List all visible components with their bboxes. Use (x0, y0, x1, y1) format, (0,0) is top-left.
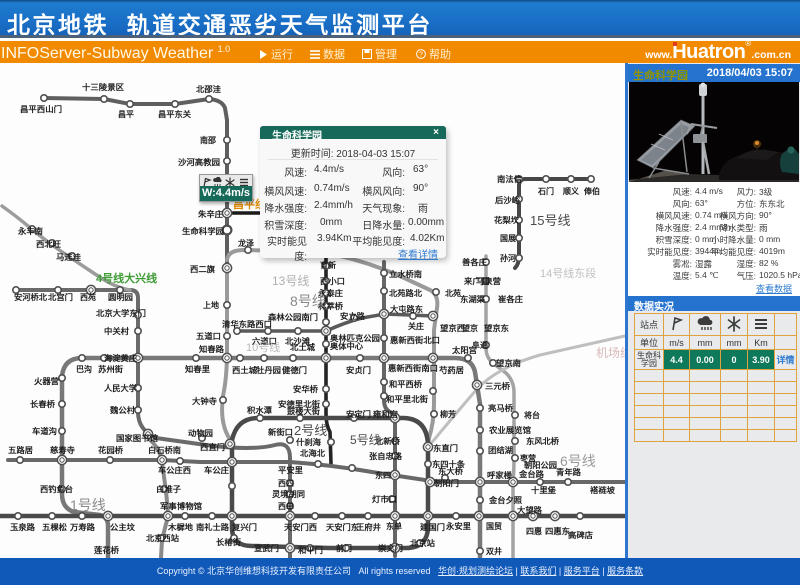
svg-text:东湖渠: 东湖渠 (460, 294, 486, 304)
svg-text:生命科学园: 生命科学园 (182, 226, 224, 236)
svg-text:大屯路东: 大屯路东 (390, 304, 423, 314)
svg-text:天安门西: 天安门西 (284, 522, 317, 532)
svg-text:北海北: 北海北 (300, 448, 326, 458)
svg-text:军事博物馆: 军事博物馆 (160, 501, 202, 511)
svg-text:惠新西街北口: 惠新西街北口 (390, 335, 440, 345)
svg-text:昌平: 昌平 (118, 109, 134, 119)
svg-text:崔各庄: 崔各庄 (497, 294, 523, 304)
svg-text:望京: 望京 (462, 323, 478, 333)
svg-text:安华桥: 安华桥 (293, 384, 319, 394)
svg-text:灵境胡同: 灵境胡同 (272, 489, 305, 499)
svg-text:火器营: 火器营 (34, 376, 59, 386)
svg-text:北邵洼: 北邵洼 (196, 84, 222, 94)
svg-text:北京西站: 北京西站 (146, 533, 180, 543)
svg-text:10号线: 10号线 (246, 340, 280, 354)
svg-text:平安里: 平安里 (278, 465, 303, 475)
svg-text:机场线: 机场线 (596, 346, 625, 360)
svg-text:孙河: 孙河 (500, 253, 517, 263)
svg-text:西苑: 西苑 (80, 292, 97, 302)
svg-text:高碑店: 高碑店 (568, 530, 593, 540)
svg-text:健德门: 健德门 (282, 365, 307, 375)
svg-text:8号线: 8号线 (290, 293, 326, 309)
svg-text:北苑: 北苑 (445, 288, 462, 298)
svg-text:西二旗: 西二旗 (190, 264, 215, 274)
svg-text:后沙峪: 后沙峪 (495, 195, 521, 205)
svg-text:13号线: 13号线 (272, 274, 309, 288)
svg-text:白堆子: 白堆子 (156, 484, 181, 494)
svg-text:知春里: 知春里 (184, 364, 210, 374)
svg-text:俸伯: 俸伯 (583, 186, 600, 196)
svg-text:马连洼: 马连洼 (56, 252, 82, 262)
svg-text:阜通: 阜通 (472, 340, 489, 350)
svg-text:安立路: 安立路 (340, 311, 366, 321)
svg-text:北宫门: 北宫门 (48, 292, 73, 302)
svg-text:花园桥: 花园桥 (98, 445, 124, 455)
svg-text:南法信: 南法信 (497, 174, 522, 184)
svg-text:十里堡: 十里堡 (531, 485, 557, 495)
svg-text:东四: 东四 (375, 470, 391, 480)
svg-text:什刹海: 什刹海 (296, 437, 322, 447)
svg-text:永丰南: 永丰南 (17, 226, 43, 236)
svg-text:金台夕照: 金台夕照 (488, 495, 523, 505)
svg-text:永安里: 永安里 (445, 521, 471, 531)
svg-text:大望路: 大望路 (517, 505, 543, 515)
svg-text:安定门: 安定门 (346, 409, 371, 419)
svg-text:双井: 双井 (486, 546, 502, 556)
svg-text:15号线: 15号线 (530, 213, 570, 228)
svg-text:石门: 石门 (537, 186, 554, 196)
svg-text:安贞门: 安贞门 (346, 365, 371, 375)
svg-text:东单: 东单 (386, 521, 402, 531)
svg-text:将台: 将台 (524, 410, 540, 420)
svg-text:人民大学: 人民大学 (104, 383, 137, 393)
svg-text:雍和宫: 雍和宫 (373, 409, 398, 419)
svg-text:长椿街: 长椿街 (216, 537, 242, 547)
svg-text:农业展览馆: 农业展览馆 (488, 425, 531, 435)
svg-text:复兴门: 复兴门 (231, 522, 257, 532)
svg-text:上地: 上地 (203, 300, 220, 310)
svg-text:南邵: 南邵 (200, 135, 217, 145)
svg-text:北京站: 北京站 (410, 538, 436, 548)
svg-text:西小口: 西小口 (320, 276, 345, 286)
svg-text:魏公村: 魏公村 (109, 405, 136, 415)
svg-text:十三陵景区: 十三陵景区 (82, 82, 124, 92)
svg-text:龙泽: 龙泽 (237, 238, 255, 248)
svg-text:万寿路: 万寿路 (69, 522, 96, 532)
svg-text:关庄: 关庄 (408, 321, 424, 331)
svg-text:圆明园: 圆明园 (108, 293, 133, 302)
svg-text:沙河高教园: 沙河高教园 (178, 157, 220, 167)
svg-text:鼓楼大街: 鼓楼大街 (287, 406, 321, 416)
svg-text:四惠: 四惠 (526, 526, 542, 536)
svg-text:公主坟: 公主坟 (110, 522, 136, 532)
svg-text:车公庄西: 车公庄西 (158, 465, 191, 475)
svg-text:1号线: 1号线 (70, 497, 106, 513)
svg-text:亮马桥: 亮马桥 (488, 403, 514, 413)
svg-text:4号线大兴线: 4号线大兴线 (96, 271, 157, 285)
svg-text:西北旺: 西北旺 (36, 239, 62, 249)
svg-text:2号线: 2号线 (294, 423, 327, 438)
svg-text:王府井: 王府井 (356, 522, 381, 532)
svg-text:北土城: 北土城 (290, 342, 316, 352)
svg-text:宣武门: 宣武门 (254, 543, 279, 553)
svg-text:西钓鱼台: 西钓鱼台 (40, 484, 73, 494)
svg-text:三元桥: 三元桥 (485, 381, 511, 391)
svg-text:和平西桥: 和平西桥 (388, 379, 423, 389)
svg-text:东直门: 东直门 (433, 443, 458, 453)
svg-text:莲花桥: 莲花桥 (94, 545, 120, 555)
svg-text:清华东路西口: 清华东路西口 (222, 319, 272, 329)
svg-text:5号线: 5号线 (350, 433, 381, 447)
svg-text:朝阳门: 朝阳门 (434, 478, 459, 488)
svg-text:车公庄: 车公庄 (204, 465, 229, 475)
svg-text:五道口: 五道口 (196, 331, 221, 341)
svg-text:西土城: 西土城 (232, 365, 258, 375)
svg-text:东大桥: 东大桥 (438, 466, 464, 476)
svg-text:褡裢坡: 褡裢坡 (590, 485, 616, 495)
svg-text:望京东: 望京东 (484, 323, 509, 333)
svg-text:北苑路北: 北苑路北 (389, 288, 423, 298)
svg-text:牡丹园: 牡丹园 (256, 365, 281, 375)
svg-text:巴沟: 巴沟 (76, 364, 92, 374)
svg-text:长春桥: 长春桥 (30, 399, 56, 409)
svg-text:昌平西山门: 昌平西山门 (20, 104, 62, 114)
svg-text:玉泉路: 玉泉路 (10, 522, 36, 532)
svg-text:五棵松: 五棵松 (42, 522, 68, 532)
svg-text:前门: 前门 (336, 543, 352, 553)
svg-text:积水潭: 积水潭 (247, 405, 272, 415)
svg-text:海淀黄庄: 海淀黄庄 (104, 353, 137, 363)
svg-text:国家图书馆: 国家图书馆 (116, 433, 158, 443)
svg-text:西直门: 西直门 (200, 442, 225, 452)
svg-text:育新: 育新 (320, 260, 337, 270)
svg-text:安河桥北: 安河桥北 (14, 292, 48, 302)
svg-text:芍药居: 芍药居 (439, 365, 464, 375)
svg-text:花梨坎: 花梨坎 (494, 215, 520, 225)
svg-text:国展: 国展 (500, 233, 517, 243)
svg-text:柳芳: 柳芳 (440, 409, 456, 419)
svg-text:惠新西街南口: 惠新西街南口 (388, 363, 438, 373)
svg-text:昌平东关: 昌平东关 (158, 109, 192, 119)
svg-text:中关村: 中关村 (104, 326, 130, 336)
svg-text:奥体中心: 奥体中心 (329, 341, 364, 351)
svg-text:6号线: 6号线 (560, 453, 596, 469)
svg-text:呼家楼: 呼家楼 (487, 470, 513, 480)
svg-text:和平里北街: 和平里北街 (385, 394, 429, 404)
svg-text:知春路: 知春路 (198, 344, 225, 354)
svg-text:崇文门: 崇文门 (378, 543, 403, 553)
svg-text:南礼士路: 南礼士路 (196, 522, 230, 532)
svg-text:张自忠路: 张自忠路 (369, 451, 403, 461)
svg-text:四惠东: 四惠东 (545, 526, 570, 536)
svg-text:苏州街: 苏州街 (98, 364, 124, 374)
svg-text:朝阳公园: 朝阳公园 (524, 460, 557, 470)
svg-text:和平门: 和平门 (297, 545, 323, 555)
svg-text:木樨地: 木樨地 (167, 522, 194, 532)
svg-text:五路居: 五路居 (8, 445, 33, 455)
svg-text:马泉营: 马泉营 (476, 276, 501, 286)
svg-text:团结湖: 团结湖 (488, 445, 513, 455)
svg-text:望京南: 望京南 (496, 358, 521, 368)
svg-text:建国门: 建国门 (420, 522, 445, 532)
svg-text:动物园: 动物园 (188, 428, 213, 438)
svg-text:国贸: 国贸 (486, 521, 502, 531)
svg-text:天安门东: 天安门东 (326, 522, 359, 532)
svg-text:朱辛庄: 朱辛庄 (197, 209, 223, 219)
svg-text:白石桥南: 白石桥南 (148, 445, 181, 455)
svg-text:西四: 西四 (278, 479, 294, 488)
svg-text:?: ? (419, 52, 423, 59)
svg-text:14号线东段: 14号线东段 (540, 266, 596, 280)
svg-text:西单: 西单 (278, 501, 294, 511)
svg-text:北京大学东门: 北京大学东门 (96, 308, 146, 318)
svg-text:大钟寺: 大钟寺 (192, 396, 217, 406)
svg-text:东风北桥: 东风北桥 (526, 436, 560, 446)
svg-text:森林公园南门: 森林公园南门 (268, 312, 318, 322)
svg-text:善各庄: 善各庄 (462, 257, 487, 267)
svg-text:立水桥南: 立水桥南 (389, 269, 422, 279)
svg-text:灯市口: 灯市口 (372, 494, 397, 504)
svg-text:金台路: 金台路 (518, 469, 545, 479)
svg-text:顺义: 顺义 (563, 186, 580, 196)
svg-text:慈寿寺: 慈寿寺 (50, 445, 75, 455)
svg-text:车道沟: 车道沟 (32, 426, 57, 436)
svg-text:新街口: 新街口 (268, 427, 293, 437)
